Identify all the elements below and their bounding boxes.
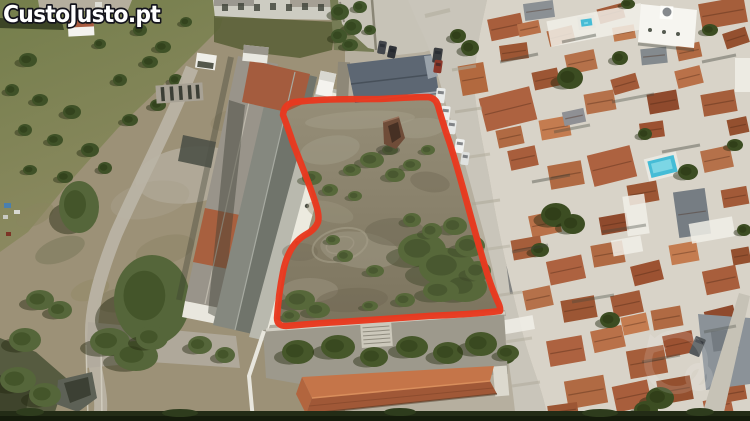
tree-core — [309, 305, 322, 314]
tree-core — [368, 267, 378, 274]
tree-core — [704, 26, 713, 33]
tree-core — [729, 141, 738, 148]
tree-core — [345, 166, 355, 173]
tree-core — [182, 19, 189, 25]
tree-core — [191, 339, 204, 349]
tree-core — [64, 190, 86, 219]
tree-core — [333, 7, 343, 16]
tree-core — [34, 96, 43, 103]
tree-core — [564, 218, 577, 229]
tree-core — [405, 215, 415, 223]
tree-core — [437, 346, 454, 358]
tree-core — [65, 107, 75, 115]
tree-core — [364, 303, 373, 309]
tree-core — [100, 164, 108, 171]
tree-core — [95, 333, 117, 348]
tree-core — [339, 252, 348, 259]
tree-core — [350, 193, 358, 199]
tree-core — [157, 43, 166, 50]
tower-roof — [663, 8, 672, 17]
car-windshield — [443, 109, 449, 113]
yard-hut-a — [195, 53, 217, 71]
tree-core — [468, 265, 482, 276]
tree-core — [640, 130, 648, 137]
ruin-roof-patch — [214, 0, 254, 6]
tree-core — [218, 350, 229, 359]
tree-core — [289, 294, 306, 305]
tree-core — [123, 271, 165, 321]
staircase — [360, 322, 393, 348]
tree-core — [500, 348, 512, 357]
tuft — [686, 408, 714, 416]
tree-core — [30, 294, 45, 305]
tree-core — [59, 173, 68, 180]
church-window — [662, 30, 666, 34]
tuft — [384, 408, 416, 416]
tree-core — [428, 284, 448, 296]
tree-core — [25, 167, 33, 173]
tree-core — [388, 170, 399, 178]
listing-photo: CustoJusto.pt — [0, 0, 750, 421]
tree-core — [346, 22, 356, 31]
tree-core — [344, 41, 353, 48]
tree-core — [650, 391, 665, 403]
yard-object — [14, 210, 20, 214]
dark-band-deep — [0, 416, 750, 421]
car-windshield — [438, 91, 444, 95]
tree-core — [20, 126, 28, 133]
tree-core — [325, 339, 344, 352]
tree-core — [623, 1, 631, 7]
tree-core — [452, 31, 461, 39]
church-window — [676, 32, 680, 36]
tree-core — [446, 220, 459, 230]
white-wall — [735, 58, 750, 92]
tree-core — [355, 3, 363, 10]
tree-core — [144, 58, 153, 65]
tree-core — [560, 71, 574, 83]
yard-object — [6, 232, 11, 236]
tree-core — [49, 136, 58, 143]
tree-core — [7, 86, 15, 93]
tree-core — [398, 295, 409, 303]
tree-core — [469, 336, 487, 349]
tree-core — [5, 372, 25, 386]
tree-core — [328, 237, 336, 243]
tree-core — [400, 340, 418, 352]
tree-core — [739, 226, 747, 233]
tree-core — [286, 344, 304, 357]
tree-core — [333, 31, 342, 39]
ruin-roof-patch — [290, 0, 337, 7]
tree-core — [463, 43, 473, 52]
aerial-photograph: CustoJusto.pt — [0, 0, 750, 421]
yard-object — [3, 215, 8, 219]
loading-slab — [155, 82, 203, 103]
tree-core — [324, 186, 333, 193]
tuft — [16, 408, 44, 416]
tree-core — [364, 351, 379, 362]
tree-core — [171, 76, 179, 83]
yard-hut-b — [242, 45, 269, 64]
tree-core — [21, 55, 31, 63]
tree-core — [426, 255, 457, 276]
tree-core — [459, 239, 476, 251]
tuft — [582, 409, 618, 417]
yard-object — [4, 203, 11, 208]
tree-core — [614, 53, 623, 61]
custojusto-watermark: CustoJusto.pt — [3, 0, 161, 28]
tree-core — [96, 41, 103, 47]
tree-core — [363, 155, 376, 164]
tree-core — [423, 147, 431, 153]
tree-core — [603, 315, 614, 324]
tree-core — [405, 161, 415, 168]
tree-core — [115, 76, 123, 83]
tree-core — [33, 387, 51, 400]
tree-core — [140, 330, 158, 343]
tree-core — [51, 304, 64, 314]
tree-core — [83, 145, 93, 153]
tree-core — [124, 116, 133, 123]
church-window — [648, 28, 652, 32]
tree-core — [425, 226, 436, 235]
tree-core — [366, 27, 373, 33]
tree-core — [681, 167, 692, 176]
tree-core — [284, 312, 294, 319]
tree-core — [13, 332, 31, 345]
tree-core — [545, 207, 562, 220]
tuft — [162, 409, 198, 417]
